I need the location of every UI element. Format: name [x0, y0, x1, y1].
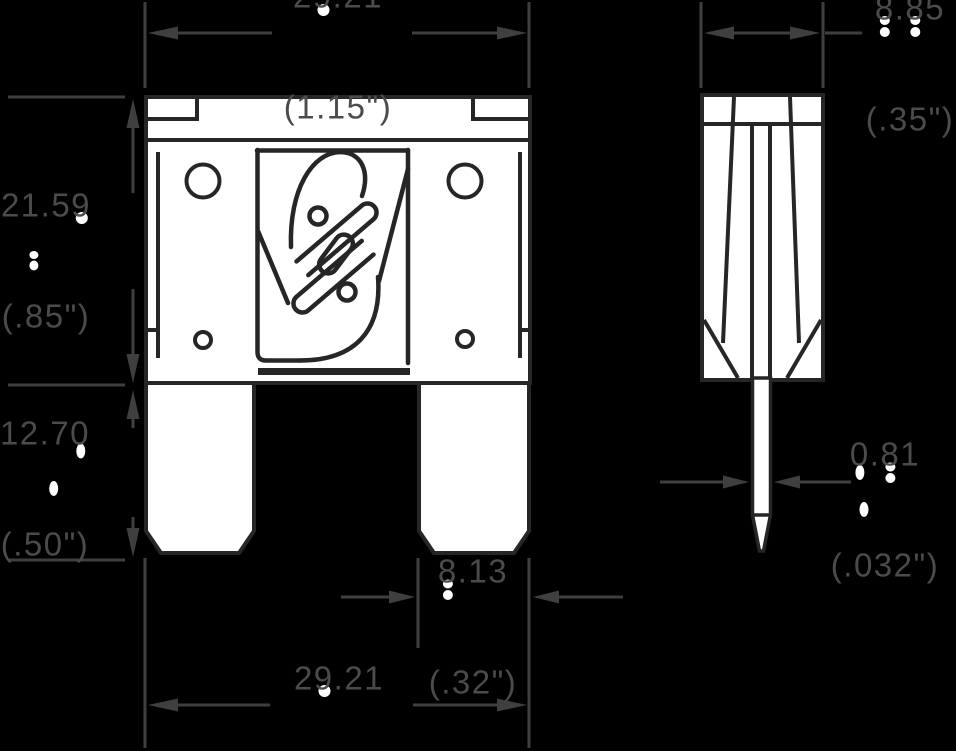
- arrow-down-icon: [127, 528, 140, 557]
- dim-value-inch: (1.15"): [284, 89, 392, 126]
- dim-label-terminal-width: 8.13 (.32"): [429, 479, 518, 738]
- dim-value-mm: 8.85: [866, 0, 955, 26]
- dim-value-mm: 29.21: [285, 659, 393, 696]
- dim-value-mm: 29.21: [284, 0, 392, 15]
- dim-value-inch: (.32"): [429, 664, 518, 701]
- dim-label-terminal-length: 12.70 (.50"): [0, 341, 90, 600]
- arrow-right-icon: [790, 27, 820, 40]
- dim-value-inch: (.85"): [1, 297, 91, 334]
- arrow-left-icon: [148, 27, 178, 40]
- dim-label-front-width-bottom: 29.21 (1.15"): [285, 585, 393, 751]
- arrow-up-icon: [127, 99, 140, 128]
- arrow-down-icon: [127, 354, 140, 383]
- dim-value-mm: 12.70: [0, 415, 90, 452]
- dim-value-inch: (.032"): [831, 547, 939, 584]
- dim-value-mm: 8.13: [429, 553, 518, 590]
- arrow-left-icon: [148, 699, 178, 712]
- arrow-left-icon: [533, 591, 559, 604]
- dim-value-inch: (.35"): [866, 100, 955, 137]
- arrow-up-icon: [127, 390, 140, 419]
- dim-label-body-height: 21.59 (.85"): [1, 112, 91, 371]
- dim-label-front-width-top: 29.21 (1.15"): [284, 0, 392, 163]
- window-bottom-bar: [258, 368, 410, 375]
- arrow-right-icon: [497, 27, 527, 40]
- fuse-dimension-drawing: 29.21 (1.15") 8.85 (.35") 21.59 (.85") 1…: [0, 0, 956, 751]
- dim-label-side-width: 8.85 (.35"): [866, 0, 955, 174]
- terminal-left: [146, 383, 254, 553]
- arrow-right-icon: [723, 476, 749, 489]
- dim-label-blade-thickness: 0.81 (.032"): [831, 362, 939, 621]
- dim-side-width: [701, 2, 862, 88]
- dim-value-mm: 21.59: [1, 186, 91, 223]
- side-body: [702, 95, 823, 380]
- arrow-left-icon: [774, 476, 800, 489]
- arrow-left-icon: [704, 27, 734, 40]
- side-blade: [753, 378, 771, 551]
- dim-value-inch: (.50"): [0, 526, 90, 563]
- dim-value-mm: 0.81: [831, 436, 939, 473]
